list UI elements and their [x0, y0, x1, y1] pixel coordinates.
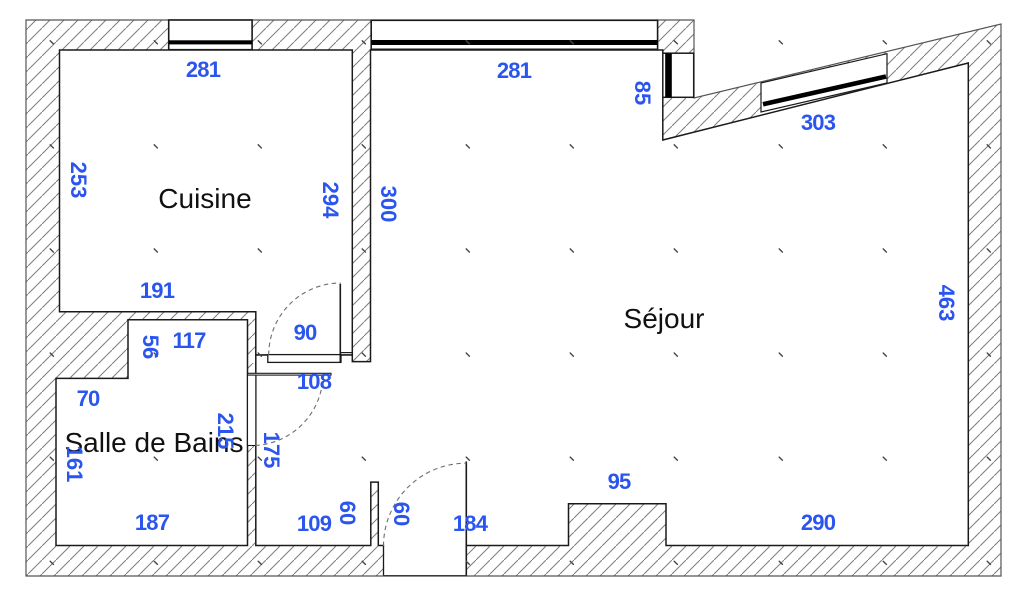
svg-text:187: 187 [135, 510, 170, 535]
svg-text:108: 108 [297, 369, 332, 394]
svg-text:Cuisine: Cuisine [158, 183, 251, 214]
svg-text:215: 215 [213, 413, 238, 450]
svg-text:109: 109 [297, 511, 332, 536]
svg-text:253: 253 [66, 162, 91, 199]
svg-text:117: 117 [172, 328, 206, 353]
svg-text:60: 60 [335, 501, 360, 525]
svg-text:Séjour: Séjour [624, 303, 705, 334]
svg-text:56: 56 [138, 335, 163, 359]
svg-text:191: 191 [140, 278, 175, 303]
svg-text:290: 290 [801, 510, 836, 535]
svg-text:281: 281 [497, 58, 532, 83]
svg-text:85: 85 [630, 81, 655, 105]
svg-text:60: 60 [389, 502, 414, 526]
svg-text:463: 463 [934, 285, 959, 322]
svg-text:95: 95 [608, 469, 631, 494]
svg-text:70: 70 [77, 386, 100, 411]
svg-text:300: 300 [376, 186, 401, 223]
svg-text:294: 294 [318, 182, 343, 219]
svg-text:303: 303 [801, 110, 836, 135]
svg-text:175: 175 [259, 432, 284, 469]
svg-text:90: 90 [294, 320, 317, 345]
svg-text:281: 281 [186, 57, 221, 82]
svg-text:161: 161 [62, 446, 87, 483]
svg-text:184: 184 [453, 511, 489, 536]
